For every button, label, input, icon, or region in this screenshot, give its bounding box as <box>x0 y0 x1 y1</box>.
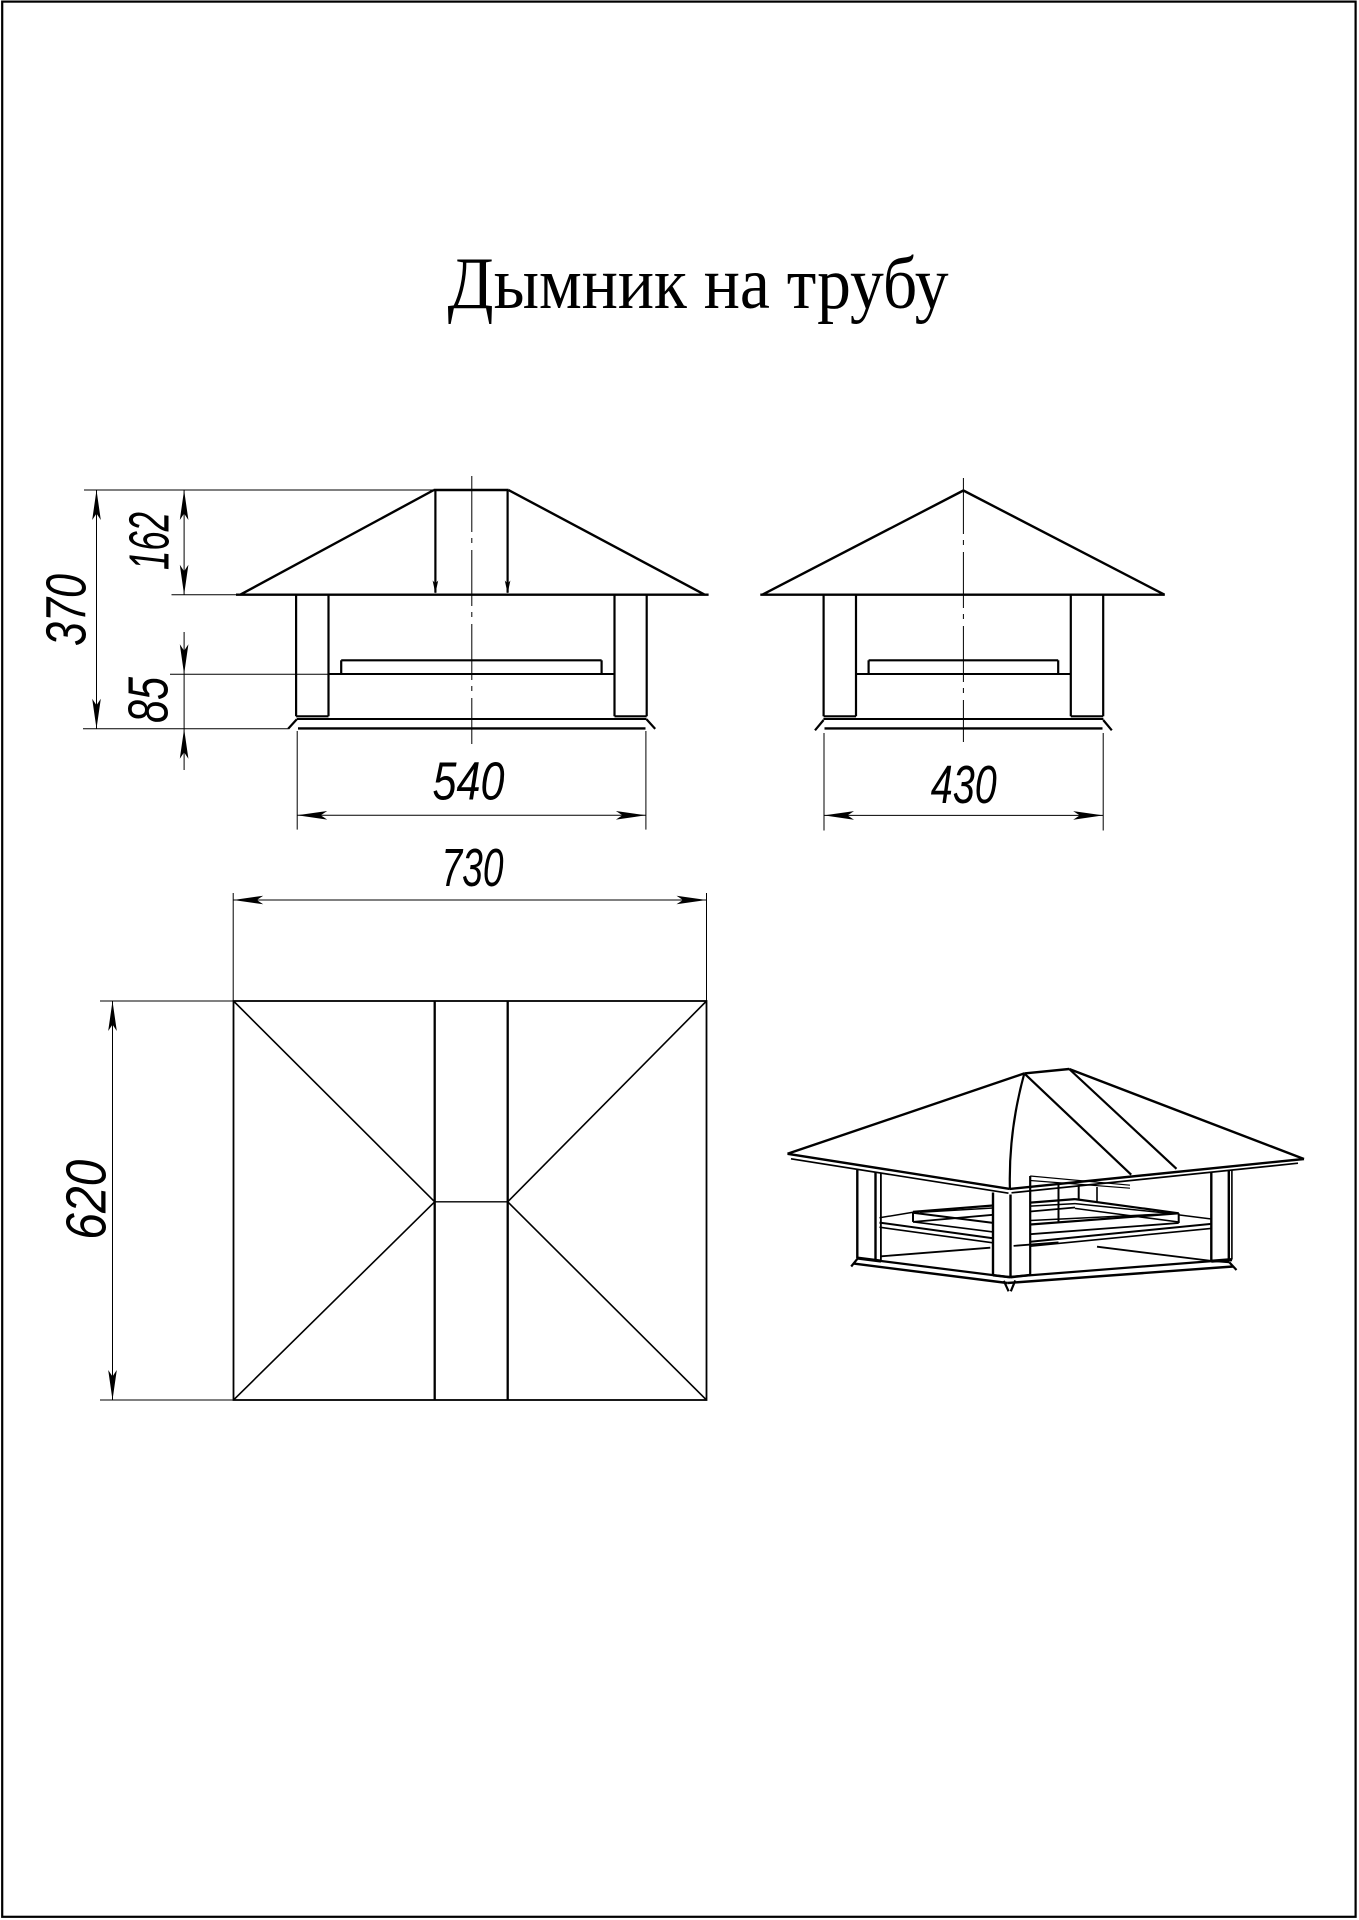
svg-text:162: 162 <box>118 512 182 570</box>
svg-text:730: 730 <box>442 838 504 898</box>
svg-text:370: 370 <box>35 574 99 646</box>
svg-text:540: 540 <box>433 752 505 812</box>
svg-text:430: 430 <box>931 755 997 815</box>
svg-text:Дымник на трубу: Дымник на трубу <box>448 243 949 325</box>
svg-text:620: 620 <box>55 1159 119 1239</box>
svg-text:85: 85 <box>117 677 181 723</box>
